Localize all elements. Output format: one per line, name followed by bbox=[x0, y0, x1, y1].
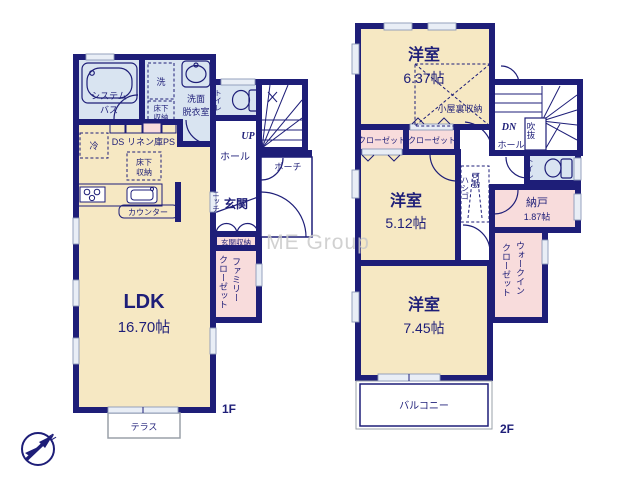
floorplan-image: システム バス 洗 洗面 脱衣室 床下 収納 トイレ 冷 DS リネン庫 PS … bbox=[0, 0, 640, 480]
label-nando: 納戸 bbox=[526, 196, 548, 209]
label-floor-2f: 2F bbox=[500, 422, 514, 436]
label-famclo-1: ファミリー bbox=[231, 257, 241, 302]
bed3-door-arc bbox=[463, 225, 490, 252]
label-bath-1: システム bbox=[91, 91, 127, 101]
label-fridge: 冷 bbox=[89, 140, 98, 151]
window bbox=[86, 54, 114, 60]
label-up: UP bbox=[241, 131, 255, 142]
label-wic-1: ウォークイン bbox=[515, 241, 525, 295]
label-closet1: クローゼット bbox=[358, 135, 406, 145]
window bbox=[428, 23, 456, 30]
window bbox=[256, 264, 262, 286]
label-linen: リネン庫 bbox=[127, 136, 163, 147]
label-ladder-1: 可動 bbox=[472, 172, 481, 189]
label-washer: 洗 bbox=[156, 76, 165, 87]
label-famclo-2: クローゼット bbox=[218, 255, 228, 309]
label-bath-2: バス bbox=[100, 105, 118, 115]
label-entrance: 玄関 bbox=[224, 196, 248, 211]
label-toilet-1f: トイレ bbox=[214, 89, 223, 112]
label-terrace: テラス bbox=[131, 422, 158, 432]
compass-icon: N bbox=[22, 431, 58, 465]
window bbox=[352, 170, 359, 198]
window bbox=[73, 338, 79, 364]
window bbox=[574, 158, 581, 180]
label-hall-2f: ホール bbox=[497, 140, 524, 150]
floorplan-svg: システム バス 洗 洗面 脱衣室 床下 収納 トイレ 冷 DS リネン庫 PS … bbox=[0, 0, 640, 480]
label-bed1: 洋室 bbox=[408, 45, 440, 64]
label-bed3: 洋室 bbox=[408, 295, 440, 314]
label-entrance-storage: 玄関収納 bbox=[221, 237, 251, 247]
label-closet2: クローゼット bbox=[408, 135, 456, 145]
label-bed2-size: 5.12帖 bbox=[385, 215, 426, 231]
toilet2-door-arc bbox=[506, 157, 527, 178]
label-wic-2: クローゼット bbox=[501, 243, 511, 297]
window bbox=[73, 280, 79, 306]
closet-sliding-door bbox=[362, 149, 402, 155]
label-ldk: LDK bbox=[123, 291, 165, 313]
window bbox=[352, 44, 359, 74]
window bbox=[574, 194, 581, 220]
label-ufs-wash-1: 床下 bbox=[154, 103, 169, 113]
label-ufs-ldk-2: 収納 bbox=[136, 167, 152, 177]
label-nando-size: 1.87帖 bbox=[524, 211, 551, 222]
label-floor-1f: 1F bbox=[222, 402, 236, 416]
label-porch: ポーチ bbox=[274, 162, 301, 172]
label-ldk-size: 16.70帖 bbox=[118, 319, 171, 336]
label-washroom-1: 洗面 bbox=[187, 93, 205, 104]
label-niche: ニッチ bbox=[212, 190, 221, 213]
window bbox=[352, 292, 359, 322]
window bbox=[221, 79, 255, 85]
label-dn: DN bbox=[501, 122, 517, 133]
label-bed3-size: 7.45帖 bbox=[403, 320, 444, 336]
stove-icon bbox=[80, 187, 105, 202]
window bbox=[384, 23, 412, 30]
label-toilet-2f: トイレ bbox=[526, 157, 535, 180]
label-ufs-wash-2: 収納 bbox=[154, 112, 169, 122]
label-ps: PS bbox=[163, 137, 175, 147]
label-balcony: バルコニー bbox=[399, 400, 449, 412]
window bbox=[73, 218, 79, 244]
floorplan-2f: 洋室 6.37帖 小屋裏収納 クローゼット クローゼット DN ホール 吹抜 ト… bbox=[352, 23, 581, 436]
window bbox=[542, 240, 548, 264]
label-ds: DS bbox=[112, 137, 125, 147]
label-void: 吹抜 bbox=[526, 121, 536, 140]
label-bed1-size: 6.37帖 bbox=[403, 70, 444, 86]
label-counter: カウンター bbox=[128, 208, 168, 217]
label-hall-1f: ホール bbox=[220, 151, 250, 163]
label-ladder-2: ハシゴ bbox=[461, 176, 470, 200]
label-washroom-2: 脱衣室 bbox=[182, 106, 209, 117]
porch-top-wall bbox=[259, 150, 312, 157]
kitchen-sink-icon bbox=[127, 187, 157, 203]
label-attic: 小屋裏収納 bbox=[437, 103, 482, 114]
kitchen-stub-wall bbox=[175, 182, 181, 222]
label-ufs-ldk-1: 床下 bbox=[136, 157, 152, 167]
label-bed2: 洋室 bbox=[390, 191, 422, 210]
window bbox=[210, 328, 216, 354]
watermark: ME Group bbox=[266, 231, 370, 254]
